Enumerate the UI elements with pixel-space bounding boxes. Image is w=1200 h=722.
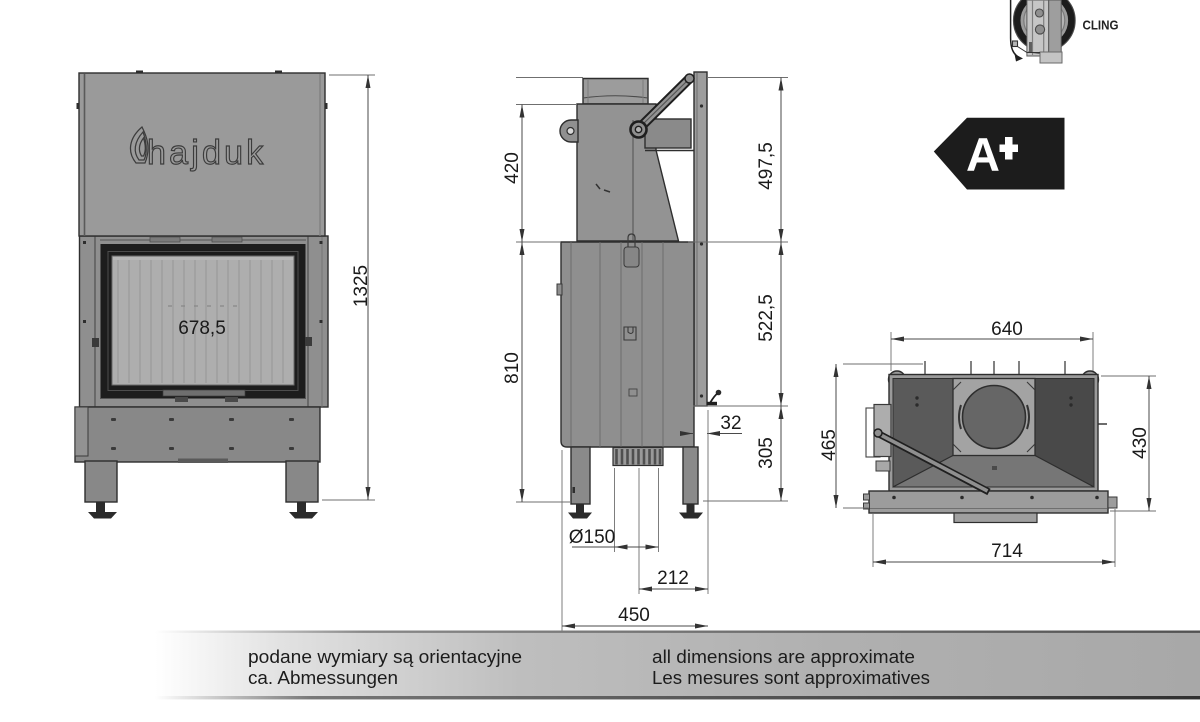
svg-text:305: 305 [756, 437, 777, 469]
svg-text:465: 465 [819, 429, 840, 461]
svg-text:Ø150: Ø150 [569, 527, 615, 548]
svg-text:A: A [966, 128, 1000, 181]
svg-text:Les mesures sont approximative: Les mesures sont approximatives [652, 668, 930, 688]
svg-text:678,5: 678,5 [178, 318, 226, 339]
svg-text:497,5: 497,5 [756, 142, 777, 190]
svg-text:hajduk: hajduk [147, 134, 266, 172]
svg-text:32: 32 [720, 413, 741, 434]
svg-text:ca. Abmessungen: ca. Abmessungen [248, 668, 398, 688]
svg-text:640: 640 [991, 319, 1023, 340]
svg-text:450: 450 [618, 605, 650, 626]
svg-text:420: 420 [502, 152, 523, 184]
svg-text:522,5: 522,5 [756, 294, 777, 342]
svg-text:212: 212 [657, 568, 689, 589]
svg-text:podane wymiary są orientacyjne: podane wymiary są orientacyjne [248, 647, 522, 667]
svg-text:810: 810 [502, 352, 523, 384]
svg-text:714: 714 [991, 541, 1023, 562]
svg-text:all dimensions are approximate: all dimensions are approximate [652, 647, 915, 667]
svg-text:430: 430 [1130, 427, 1151, 459]
svg-text:CLING: CLING [1083, 18, 1119, 33]
svg-text:1325: 1325 [351, 265, 372, 307]
